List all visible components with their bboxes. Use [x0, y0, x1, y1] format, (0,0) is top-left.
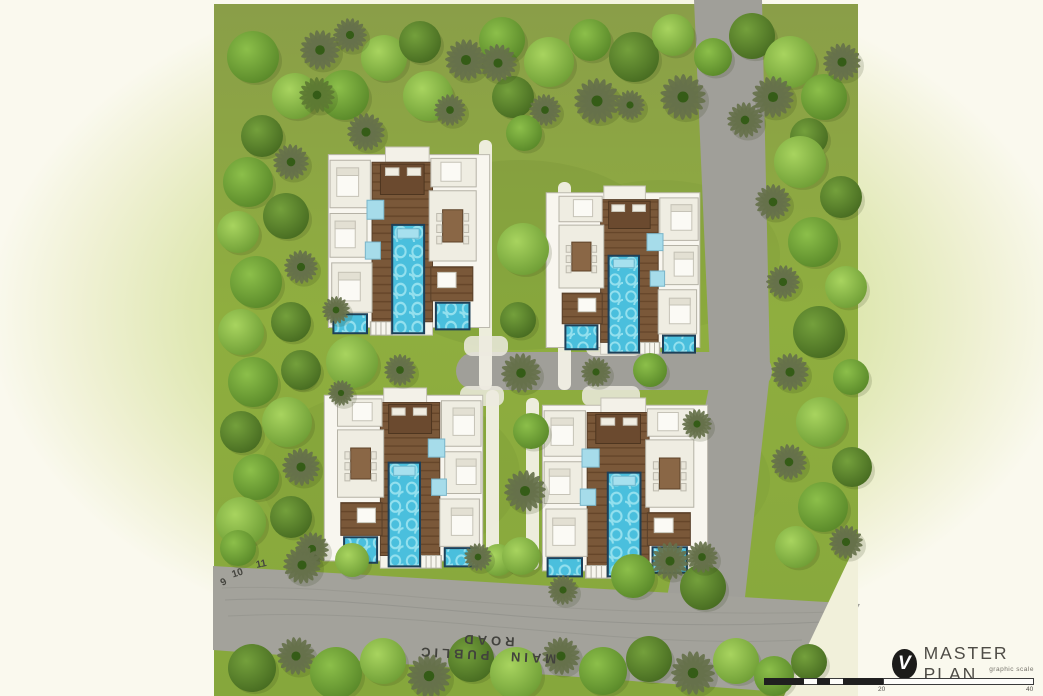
- villa-chair: [653, 473, 658, 480]
- villa-pillow: [549, 469, 570, 476]
- villa-terrace: [384, 388, 427, 403]
- villa-sofa: [413, 408, 426, 415]
- villa-pool: [565, 325, 597, 349]
- villa-chair: [437, 236, 442, 244]
- villa-pool: [548, 558, 582, 576]
- villa-chair: [464, 225, 469, 233]
- villa-chair: [345, 452, 350, 459]
- villa-pillow: [338, 272, 360, 280]
- scale-bar-segment: [764, 678, 804, 685]
- villa-pillow: [671, 205, 692, 212]
- villa-3: [324, 388, 482, 568]
- villa-bed: [438, 272, 456, 287]
- villa-chair: [681, 484, 686, 491]
- villa-sofa: [601, 418, 615, 425]
- villa-2: [546, 186, 700, 354]
- villa-steps: [370, 322, 392, 335]
- villa-pillow: [674, 252, 693, 259]
- villa-1: [328, 147, 489, 335]
- villa-chair: [566, 246, 571, 253]
- villa-chair: [592, 256, 597, 263]
- villa-pillow: [669, 298, 690, 305]
- scale-tick-label: 20: [878, 686, 885, 693]
- villa-chair: [371, 474, 376, 481]
- villa-chair: [653, 484, 658, 491]
- villa-chair: [437, 225, 442, 233]
- villa-steps: [639, 342, 660, 354]
- villa-bed: [441, 162, 461, 181]
- villa-chair: [592, 246, 597, 253]
- scale-bar-segment: [830, 678, 843, 685]
- villa-pillow: [553, 518, 575, 525]
- graphic-scale-caption: graphic scale: [930, 666, 1034, 673]
- contour-elevation-label: 11: [255, 558, 268, 571]
- villa-sofa: [633, 205, 646, 212]
- villa-pool: [392, 225, 424, 333]
- villa-bed: [357, 508, 375, 523]
- scale-bar-segment: [804, 678, 817, 685]
- villa-chair: [464, 214, 469, 222]
- villa-chair: [437, 214, 442, 222]
- villa-pillow: [451, 508, 472, 515]
- villa-bed: [578, 298, 596, 312]
- villa-pool: [389, 463, 420, 567]
- villa-terrace: [385, 147, 429, 162]
- villa-terrace: [604, 186, 646, 200]
- villa-chair: [653, 462, 658, 469]
- villa-pool: [663, 336, 695, 353]
- villa-chair: [566, 266, 571, 273]
- villa-poolstep: [394, 466, 415, 475]
- villa-pillow: [337, 168, 359, 176]
- villa-bath: [647, 234, 663, 251]
- villa-bath: [365, 242, 380, 259]
- villa-bath: [582, 449, 599, 467]
- scale-bar-segment: [883, 678, 1034, 685]
- villa-table: [351, 448, 371, 479]
- scale-tick-label: 40: [1026, 686, 1033, 693]
- checkmark-circle-icon: V: [892, 649, 917, 679]
- villa-bath: [580, 489, 595, 505]
- villa-table: [572, 242, 591, 271]
- villa-pillow: [453, 408, 474, 415]
- scale-bar-segment: [817, 678, 830, 685]
- villa-bed: [573, 200, 592, 217]
- villa-sofa: [623, 418, 637, 425]
- villa-bed: [352, 403, 372, 421]
- villa-pillow: [335, 221, 355, 229]
- villa-chair: [371, 452, 376, 459]
- villa-poolstep: [613, 259, 634, 268]
- villa-bed: [654, 518, 673, 533]
- villa-pillow: [551, 418, 573, 425]
- villa-pool: [609, 256, 639, 353]
- villa-table: [443, 210, 463, 242]
- villa-chair: [345, 463, 350, 470]
- villa-bath: [428, 439, 445, 457]
- villa-bath: [432, 479, 447, 495]
- villa-chair: [592, 266, 597, 273]
- villa-steps: [585, 565, 607, 578]
- villa-chair: [681, 462, 686, 469]
- villa-chair: [371, 463, 376, 470]
- villa-chair: [464, 236, 469, 244]
- villa-sofa: [612, 205, 625, 212]
- site-plan-map: [0, 0, 1043, 696]
- scale-bar-segment: [843, 678, 883, 685]
- villa-table: [659, 458, 680, 489]
- villa-pillow: [456, 459, 476, 466]
- walkway: [486, 390, 499, 570]
- villa-sofa: [385, 168, 398, 176]
- villa-bed: [658, 413, 679, 431]
- graphic-scale-bar: [764, 678, 1034, 685]
- villa-sofa: [392, 408, 405, 415]
- villa-poolstep: [397, 229, 419, 239]
- villa-bath: [650, 271, 664, 286]
- villa-chair: [681, 473, 686, 480]
- villa-terrace: [601, 398, 646, 413]
- villa-sofa: [407, 168, 420, 176]
- villa-bath: [367, 200, 384, 219]
- driveway-apron: [464, 336, 508, 356]
- villa-chair: [566, 256, 571, 263]
- villa-steps: [420, 555, 441, 568]
- logo-glyph: V: [898, 653, 911, 675]
- villa-poolstep: [613, 476, 635, 485]
- villa-pool: [436, 303, 470, 330]
- master-plan-drawing: MAIN PUBLIC ROAD 9 10 11 V MASTER PLAN g…: [0, 0, 1043, 696]
- villa-chair: [345, 474, 350, 481]
